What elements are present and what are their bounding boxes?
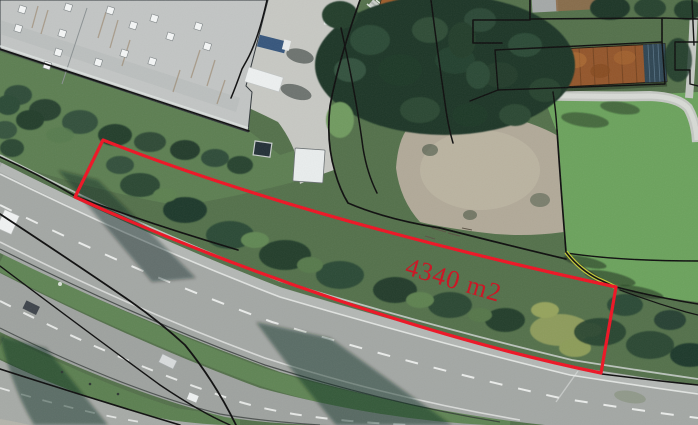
photo-grain — [0, 0, 698, 425]
aerial-map-view[interactable]: 4340 m2 — [0, 0, 698, 425]
aerial-map-canvas[interactable]: 4340 m2 — [0, 0, 698, 425]
